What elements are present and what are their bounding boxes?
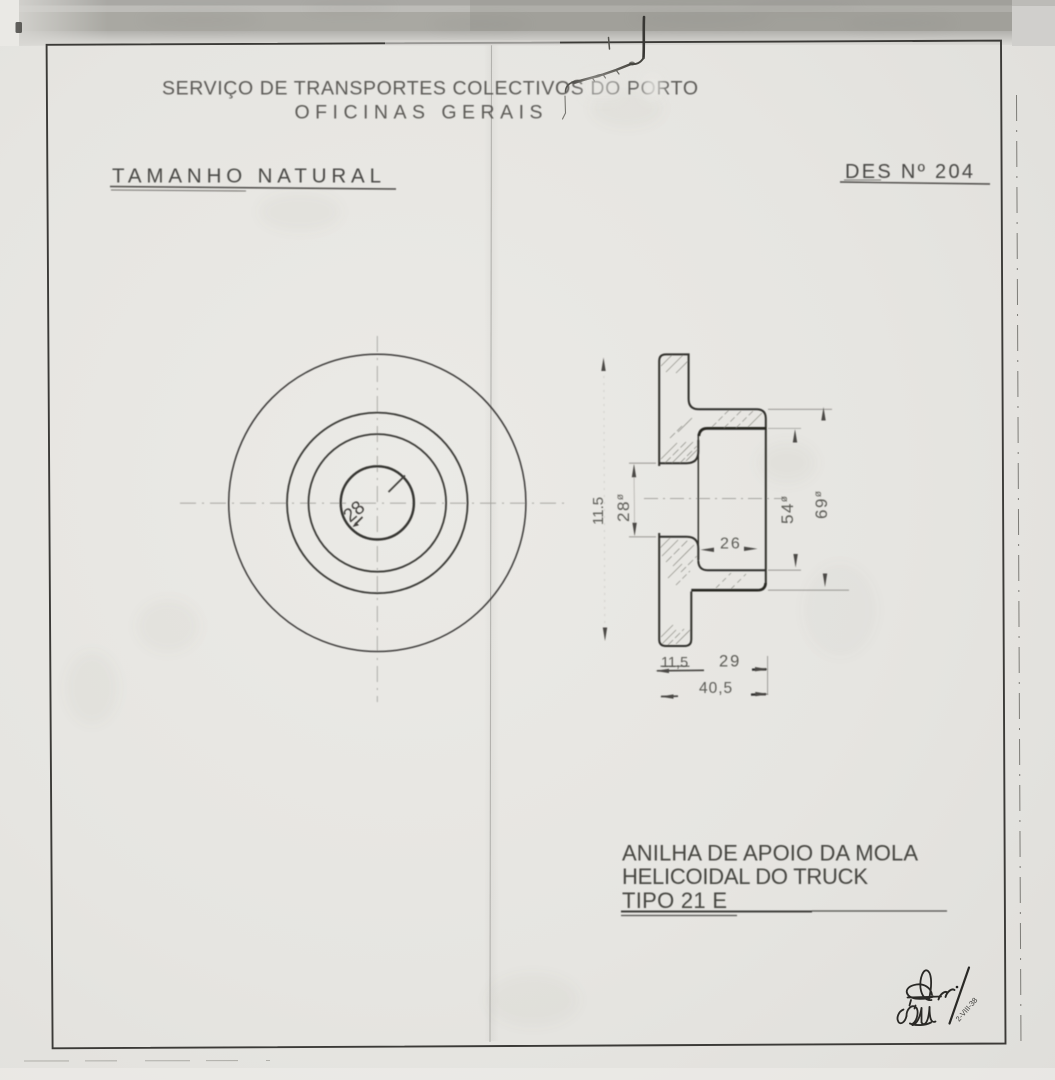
svg-text:HELICOIDAL DO TRUCK: HELICOIDAL DO TRUCK <box>622 864 868 889</box>
svg-text:ANILHA DE APOIO DA MOLA: ANILHA DE APOIO DA MOLA <box>622 841 918 866</box>
svg-text:29: 29 <box>719 653 741 671</box>
svg-text:26: 26 <box>720 536 742 553</box>
svg-text:40,5: 40,5 <box>699 680 733 697</box>
svg-text:TIPO 21 E: TIPO 21 E <box>622 888 727 913</box>
svg-text:TAMANHO NATURAL: TAMANHO NATURAL <box>112 165 381 188</box>
svg-text:11,5: 11,5 <box>661 655 688 671</box>
svg-text:11.5: 11.5 <box>590 497 607 525</box>
svg-text:OFICINAS GERAIS: OFICINAS GERAIS <box>295 102 543 124</box>
